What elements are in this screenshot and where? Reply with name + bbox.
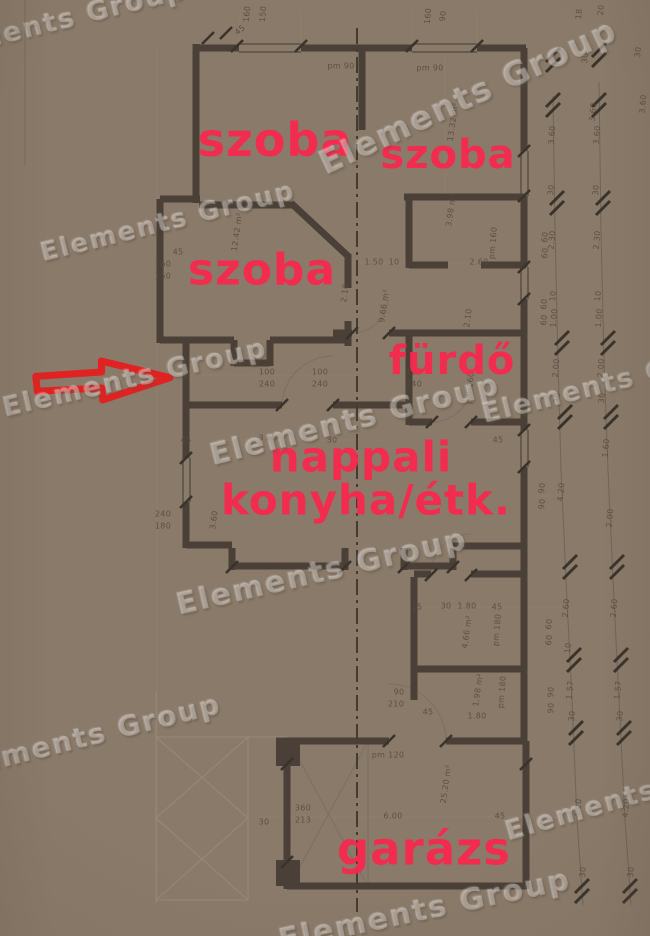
wall-pier	[276, 860, 300, 886]
red-arrow-annotation	[28, 352, 180, 410]
door-swing-arcs	[282, 297, 471, 741]
pencil-sketch-lines	[156, 692, 287, 903]
dimension-chains	[553, 82, 631, 905]
window-lines	[183, 44, 528, 502]
walls	[160, 44, 527, 889]
chain-ticks	[546, 43, 637, 903]
floorplan-drawing	[0, 0, 650, 936]
arrow-shape	[35, 359, 170, 403]
floor-plan-photo: 1601504516090pm 90pm 901820303.60303.601…	[0, 0, 650, 936]
construction-lines	[157, 10, 562, 900]
paper-edge-line	[24, 0, 26, 165]
